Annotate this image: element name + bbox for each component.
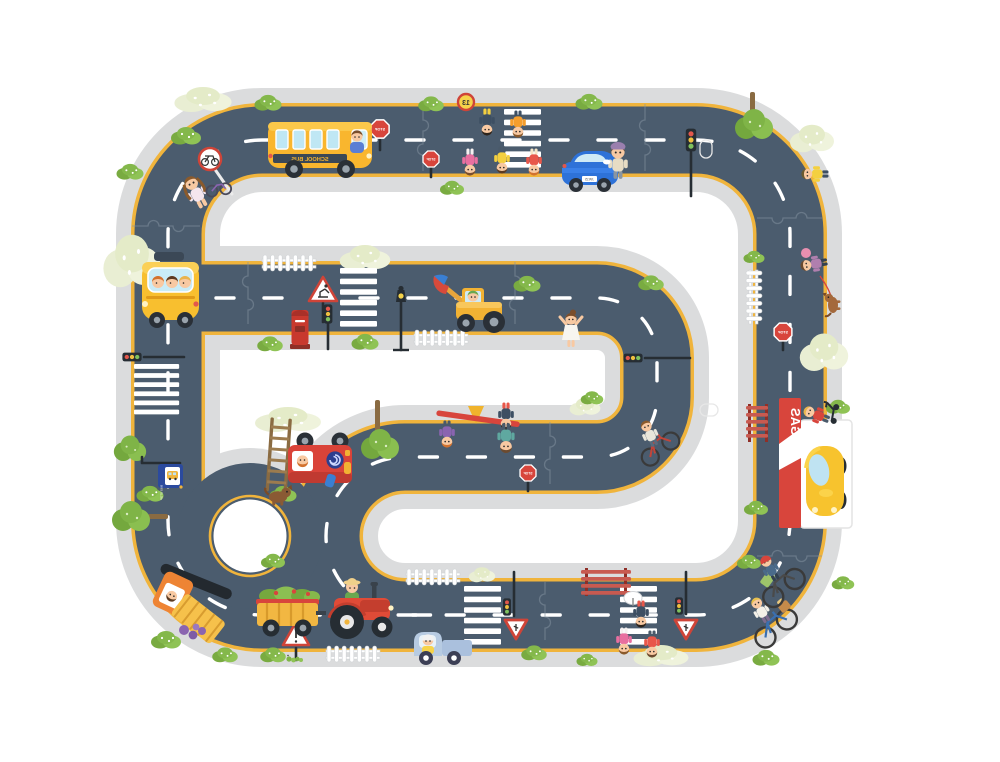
road-network <box>132 104 822 640</box>
postbox <box>290 310 310 349</box>
taxi-passengers <box>152 276 191 288</box>
bush <box>832 576 855 589</box>
yellow-beetle-car <box>806 446 847 516</box>
firefighter <box>297 455 308 467</box>
taxi-car <box>142 252 199 328</box>
gas-station-text: GAS <box>788 408 803 437</box>
tree-trunk <box>750 92 755 112</box>
tree-trunk <box>375 400 380 432</box>
license-plate: JW15 <box>585 178 594 182</box>
tree-trunk <box>148 514 168 519</box>
pale-tree <box>174 87 231 112</box>
digger-driver <box>468 291 479 302</box>
playmat: STOP <box>0 0 1000 762</box>
playmat-illustration: STOP <box>0 0 1000 762</box>
bush <box>581 391 604 404</box>
speed-limit-sign: 13 <box>458 94 474 110</box>
bus-stop-text: BUS STOP <box>160 485 164 500</box>
speed-limit-text: 13 <box>462 100 470 107</box>
